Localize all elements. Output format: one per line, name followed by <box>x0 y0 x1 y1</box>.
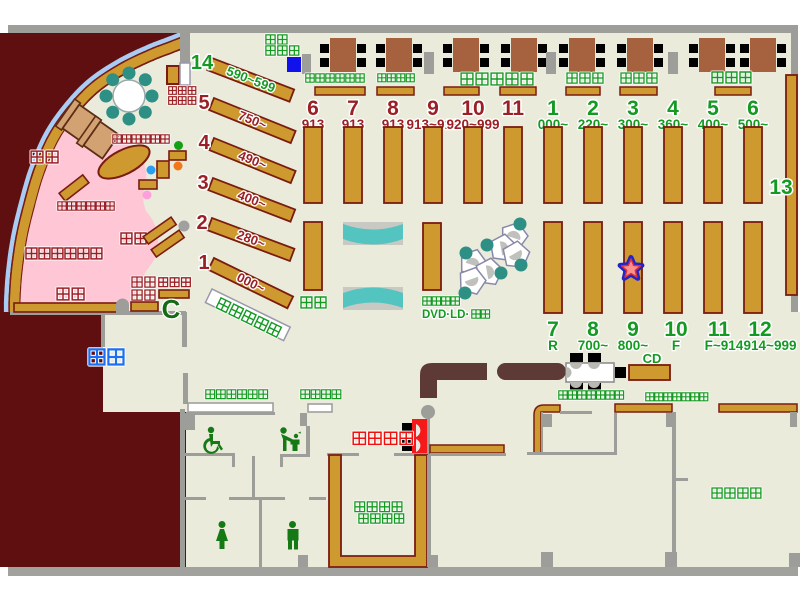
svg-text:13: 13 <box>769 176 792 199</box>
svg-text:14: 14 <box>191 52 214 74</box>
svg-text:R: R <box>548 338 558 353</box>
svg-text:1: 1 <box>198 252 209 274</box>
svg-text:CD: CD <box>643 351 662 366</box>
svg-text:2: 2 <box>196 212 207 234</box>
svg-text:F: F <box>672 338 680 353</box>
svg-text:11: 11 <box>502 97 525 120</box>
svg-text:5: 5 <box>198 92 209 114</box>
svg-text:4: 4 <box>198 132 210 154</box>
svg-text:F~914: F~914 <box>705 338 744 353</box>
svg-text:C: C <box>162 294 181 324</box>
svg-text:3: 3 <box>197 172 208 194</box>
svg-text:914~999: 914~999 <box>744 338 797 353</box>
svg-text:DVD·LD·: DVD·LD· <box>422 309 469 321</box>
svg-text:700~: 700~ <box>578 338 609 353</box>
